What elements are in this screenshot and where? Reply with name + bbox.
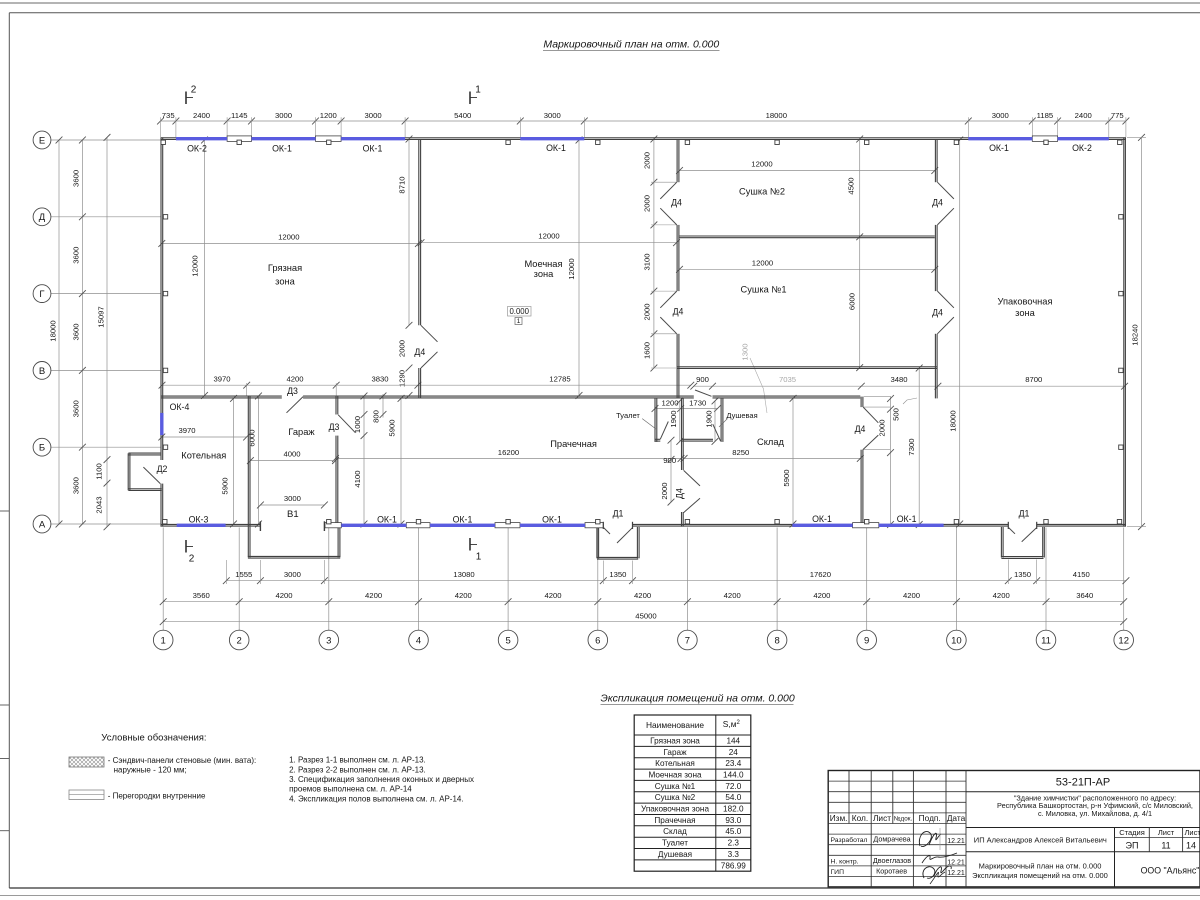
svg-text:Сушка №2: Сушка №2 <box>655 793 696 802</box>
svg-text:45000: 45000 <box>635 611 656 620</box>
svg-text:Туалет: Туалет <box>662 839 688 848</box>
svg-text:4200: 4200 <box>724 591 741 600</box>
svg-text:ОК-1: ОК-1 <box>812 514 832 524</box>
svg-text:Д1: Д1 <box>1019 509 1030 519</box>
svg-text:Упаковочная зона: Упаковочная зона <box>641 805 709 814</box>
svg-text:775: 775 <box>1111 111 1124 120</box>
svg-text:Прачечная: Прачечная <box>654 816 695 825</box>
svg-text:3. Спецификация заполнения око: 3. Спецификация заполнения оконных и две… <box>289 775 474 784</box>
svg-text:Подп.: Подп. <box>919 813 941 823</box>
svg-text:18240: 18240 <box>1130 324 1139 345</box>
svg-text:1350: 1350 <box>609 570 626 579</box>
svg-text:12000: 12000 <box>191 255 200 276</box>
svg-text:7035: 7035 <box>779 375 796 384</box>
svg-text:3970: 3970 <box>178 426 195 435</box>
svg-text:Моечная зона: Моечная зона <box>648 771 702 780</box>
svg-text:2000: 2000 <box>397 340 406 357</box>
svg-text:Листов: Листов <box>1185 828 1200 837</box>
svg-text:Кол.: Кол. <box>852 813 868 823</box>
svg-text:Маркировочный план на отм. 0.0: Маркировочный план на отм. 0.000 <box>543 39 719 51</box>
svg-text:4200: 4200 <box>634 591 651 600</box>
svg-text:735: 735 <box>162 111 175 120</box>
svg-text:1200: 1200 <box>661 398 678 407</box>
svg-text:15097: 15097 <box>96 306 105 327</box>
svg-text:Маркировочный план на отм. 0.0: Маркировочный план на отм. 0.000 <box>979 861 1102 870</box>
svg-text:1900: 1900 <box>669 410 678 427</box>
svg-text:Д: Д <box>39 212 46 223</box>
svg-text:А: А <box>39 519 46 530</box>
svg-text:4200: 4200 <box>286 375 303 384</box>
svg-text:7300: 7300 <box>907 438 916 455</box>
svg-text:Изм.: Изм. <box>830 813 848 823</box>
svg-text:1: 1 <box>517 318 521 325</box>
svg-text:3000: 3000 <box>365 111 382 120</box>
svg-text:ОК-1: ОК-1 <box>989 143 1009 153</box>
svg-text:Котельная: Котельная <box>655 759 695 768</box>
svg-text:53-21П-АР: 53-21П-АР <box>1056 776 1110 788</box>
svg-text:8: 8 <box>774 635 779 646</box>
svg-text:2000: 2000 <box>878 419 887 436</box>
svg-text:72.0: 72.0 <box>725 782 741 791</box>
svg-text:54.0: 54.0 <box>725 793 741 802</box>
svg-text:Стадия: Стадия <box>1119 828 1145 837</box>
svg-text:3600: 3600 <box>71 477 80 494</box>
svg-text:№док.: №док. <box>894 816 913 823</box>
svg-text:11: 11 <box>1161 840 1170 850</box>
svg-text:Экспликация помещений на отм.: Экспликация помещений на отм. 0.000 <box>972 871 1108 880</box>
svg-text:ИП Александров Алексей Виталье: ИП Александров Алексей Витальевич <box>974 835 1107 844</box>
svg-text:Д4: Д4 <box>932 308 943 318</box>
svg-text:23.4: 23.4 <box>725 759 741 768</box>
svg-text:4100: 4100 <box>353 470 362 487</box>
svg-text:1200: 1200 <box>320 111 337 120</box>
svg-text:Д4: Д4 <box>414 347 425 357</box>
svg-text:Моечная: Моечная <box>524 259 562 269</box>
svg-text:3600: 3600 <box>71 323 80 340</box>
svg-text:1555: 1555 <box>235 570 252 579</box>
svg-text:ОК-2: ОК-2 <box>1072 143 1092 153</box>
svg-text:1000: 1000 <box>353 416 362 433</box>
svg-text:1185: 1185 <box>1037 111 1054 120</box>
svg-text:800: 800 <box>372 410 381 423</box>
svg-text:Душевая: Душевая <box>726 411 757 420</box>
svg-text:1: 1 <box>161 635 166 646</box>
svg-text:3000: 3000 <box>284 570 301 579</box>
svg-text:Д3: Д3 <box>329 422 340 432</box>
svg-text:Сушка №1: Сушка №1 <box>741 284 787 294</box>
svg-text:3830: 3830 <box>371 375 388 384</box>
svg-text:5900: 5900 <box>388 419 397 436</box>
svg-text:наружные - 120 мм;: наружные - 120 мм; <box>114 765 187 774</box>
svg-text:Экспликация помещений на отм.: Экспликация помещений на отм. 0.000 <box>601 693 795 705</box>
svg-text:Д2: Д2 <box>157 464 168 474</box>
svg-text:ОК-1: ОК-1 <box>546 143 566 153</box>
svg-text:Склад: Склад <box>663 827 687 836</box>
svg-text:5900: 5900 <box>221 477 230 494</box>
svg-text:1300: 1300 <box>741 343 750 360</box>
svg-text:ЭП: ЭП <box>1126 840 1139 850</box>
svg-text:ОК-1: ОК-1 <box>377 514 397 524</box>
svg-text:Двоеглазов: Двоеглазов <box>873 856 911 865</box>
svg-text:18000: 18000 <box>949 410 958 431</box>
svg-text:93.0: 93.0 <box>725 816 741 825</box>
svg-text:2: 2 <box>237 635 242 646</box>
svg-text:Д4: Д4 <box>855 424 866 434</box>
svg-text:4200: 4200 <box>275 591 292 600</box>
svg-text:4150: 4150 <box>1073 570 1090 579</box>
svg-text:2.3: 2.3 <box>728 839 740 848</box>
svg-text:Д4: Д4 <box>932 198 943 208</box>
svg-text:ГИП: ГИП <box>831 869 845 876</box>
svg-text:7: 7 <box>685 635 690 646</box>
svg-text:Д3: Д3 <box>287 386 298 396</box>
svg-text:1900: 1900 <box>704 410 713 427</box>
svg-text:3000: 3000 <box>992 111 1009 120</box>
svg-text:9: 9 <box>864 635 869 646</box>
svg-text:Прачечная: Прачечная <box>550 439 597 449</box>
svg-text:Д4: Д4 <box>675 488 685 499</box>
svg-text:45.0: 45.0 <box>725 827 741 836</box>
svg-text:Лист: Лист <box>1158 828 1175 837</box>
svg-text:зона: зона <box>534 269 554 279</box>
svg-text:3480: 3480 <box>890 375 907 384</box>
svg-text:5: 5 <box>505 635 510 646</box>
svg-text:24: 24 <box>729 748 739 757</box>
svg-text:11: 11 <box>1041 635 1051 646</box>
svg-text:1730: 1730 <box>689 398 706 407</box>
svg-text:- Сэндвич-панели стеновые (мин: - Сэндвич-панели стеновые (мин. вата): <box>108 756 257 765</box>
svg-text:ОК-2: ОК-2 <box>187 143 207 153</box>
svg-text:6000: 6000 <box>848 293 857 310</box>
svg-text:2000: 2000 <box>643 152 652 169</box>
svg-text:4200: 4200 <box>455 591 472 600</box>
svg-text:3000: 3000 <box>275 111 292 120</box>
svg-text:1145: 1145 <box>231 111 248 120</box>
svg-text:5900: 5900 <box>782 469 791 486</box>
svg-text:144: 144 <box>726 736 740 745</box>
svg-text:ОК-1: ОК-1 <box>542 514 562 524</box>
svg-text:Дата: Дата <box>947 813 966 823</box>
svg-text:Лист: Лист <box>873 813 891 823</box>
svg-text:12000: 12000 <box>567 258 576 279</box>
svg-text:6: 6 <box>595 635 600 646</box>
svg-text:4: 4 <box>416 635 421 646</box>
svg-text:8250: 8250 <box>732 448 749 457</box>
svg-text:3600: 3600 <box>71 170 80 187</box>
svg-text:проемов выполнена см. л. АР-14: проемов выполнена см. л. АР-14 <box>289 785 412 794</box>
svg-text:В: В <box>39 366 45 377</box>
svg-text:2400: 2400 <box>193 111 210 120</box>
svg-text:Домрачева: Домрачева <box>873 835 910 844</box>
svg-text:Д1: Д1 <box>613 509 624 519</box>
svg-text:8710: 8710 <box>397 176 406 193</box>
svg-text:2: 2 <box>191 85 197 96</box>
svg-text:16200: 16200 <box>498 448 519 457</box>
svg-text:Условные обозначения:: Условные обозначения: <box>101 733 206 744</box>
svg-text:Туалет: Туалет <box>616 411 640 420</box>
svg-text:- Перегородки внутренние: - Перегородки внутренние <box>108 791 206 800</box>
svg-text:зона: зона <box>1015 308 1035 318</box>
svg-text:1600: 1600 <box>643 342 652 359</box>
svg-text:с. Миловка, ул. Михайлова, д.: с. Миловка, ул. Михайлова, д. 4/1 <box>1038 809 1152 818</box>
svg-text:Гараж: Гараж <box>663 748 687 757</box>
svg-text:2000: 2000 <box>643 303 652 320</box>
svg-text:12000: 12000 <box>751 160 772 169</box>
svg-text:Гараж: Гараж <box>288 427 315 437</box>
svg-text:Грязная: Грязная <box>268 263 302 273</box>
svg-text:Коротаев: Коротаев <box>876 866 907 875</box>
svg-text:2043: 2043 <box>95 496 104 513</box>
svg-text:Н. контр.: Н. контр. <box>831 858 859 865</box>
svg-text:2: 2 <box>189 554 195 565</box>
svg-text:Котельная: Котельная <box>181 451 226 461</box>
svg-text:182.0: 182.0 <box>723 805 744 814</box>
svg-text:1: 1 <box>475 85 481 96</box>
svg-text:4200: 4200 <box>993 591 1010 600</box>
svg-text:Б: Б <box>39 443 45 454</box>
svg-text:4200: 4200 <box>365 591 382 600</box>
svg-text:Е: Е <box>39 135 45 146</box>
svg-text:8700: 8700 <box>1025 375 1042 384</box>
svg-text:1350: 1350 <box>1014 570 1031 579</box>
svg-text:12000: 12000 <box>538 232 559 241</box>
svg-text:Сушка №1: Сушка №1 <box>655 782 696 791</box>
svg-text:ОК-1: ОК-1 <box>272 143 292 153</box>
svg-text:0.000: 0.000 <box>509 307 529 316</box>
svg-text:Г: Г <box>39 289 44 300</box>
svg-text:786.99: 786.99 <box>721 861 746 870</box>
svg-text:Разработал: Разработал <box>831 836 868 844</box>
svg-text:4500: 4500 <box>847 177 856 194</box>
svg-text:зона: зона <box>275 276 295 286</box>
svg-text:3600: 3600 <box>71 247 80 264</box>
svg-text:1100: 1100 <box>95 463 104 480</box>
svg-text:3600: 3600 <box>71 400 80 417</box>
svg-text:ОК-1: ОК-1 <box>363 143 383 153</box>
svg-text:2000: 2000 <box>643 195 652 212</box>
svg-text:3970: 3970 <box>213 375 230 384</box>
svg-text:ОК-1: ОК-1 <box>897 514 917 524</box>
svg-text:ОК-3: ОК-3 <box>189 514 209 524</box>
svg-text:12000: 12000 <box>752 258 773 267</box>
svg-text:10: 10 <box>951 635 962 646</box>
svg-text:900: 900 <box>663 456 676 465</box>
svg-text:В1: В1 <box>287 509 299 520</box>
svg-text:Д4: Д4 <box>673 306 684 316</box>
svg-text:Упаковочная: Упаковочная <box>997 297 1052 307</box>
svg-text:144.0: 144.0 <box>723 771 744 780</box>
svg-text:3.3: 3.3 <box>728 850 740 859</box>
svg-text:5400: 5400 <box>454 111 471 120</box>
svg-text:Душевая: Душевая <box>658 850 692 859</box>
svg-text:Наименование: Наименование <box>646 720 704 730</box>
svg-text:3000: 3000 <box>544 111 561 120</box>
svg-text:18000: 18000 <box>766 111 787 120</box>
svg-text:900: 900 <box>696 375 709 384</box>
svg-text:Склад: Склад <box>757 437 784 447</box>
svg-text:12.21: 12.21 <box>947 870 965 877</box>
svg-text:12.21: 12.21 <box>947 859 965 866</box>
svg-text:ОК-4: ОК-4 <box>170 402 190 412</box>
svg-text:4000: 4000 <box>283 450 300 459</box>
svg-text:Грязная зона: Грязная зона <box>650 736 700 745</box>
svg-text:12000: 12000 <box>278 233 299 242</box>
svg-text:3640: 3640 <box>1076 591 1093 600</box>
svg-text:12785: 12785 <box>549 375 570 384</box>
svg-text:4200: 4200 <box>813 591 830 600</box>
svg-text:12.21: 12.21 <box>947 838 965 845</box>
svg-text:2400: 2400 <box>1075 111 1092 120</box>
svg-text:500: 500 <box>892 408 901 421</box>
svg-text:Сушка №2: Сушка №2 <box>739 186 785 196</box>
svg-text:3000: 3000 <box>284 494 301 503</box>
svg-text:Д4: Д4 <box>671 198 682 208</box>
svg-text:17620: 17620 <box>810 570 831 579</box>
svg-text:3100: 3100 <box>643 253 652 270</box>
svg-text:4. Экспликация полов выполнена: 4. Экспликация полов выполнена см. л. АР… <box>289 794 463 803</box>
svg-text:1: 1 <box>476 552 482 563</box>
svg-text:4200: 4200 <box>544 591 561 600</box>
svg-text:14: 14 <box>1186 840 1196 850</box>
svg-text:2000: 2000 <box>660 482 669 499</box>
svg-text:ООО "Альянс": ООО "Альянс" <box>1141 865 1200 875</box>
svg-text:ОК-1: ОК-1 <box>453 514 473 524</box>
svg-text:1290: 1290 <box>397 370 406 387</box>
svg-text:3: 3 <box>326 635 331 646</box>
svg-text:3560: 3560 <box>193 591 210 600</box>
svg-text:1. Разрез 1-1 выполнен см. л.: 1. Разрез 1-1 выполнен см. л. АР-13. <box>289 756 426 765</box>
svg-text:4200: 4200 <box>903 591 920 600</box>
svg-text:18000: 18000 <box>48 320 57 341</box>
svg-text:12: 12 <box>1118 635 1129 646</box>
svg-text:13080: 13080 <box>453 570 474 579</box>
svg-text:2. Разрез 2-2 выполнен см. л.: 2. Разрез 2-2 выполнен см. л. АР-13. <box>289 765 426 774</box>
